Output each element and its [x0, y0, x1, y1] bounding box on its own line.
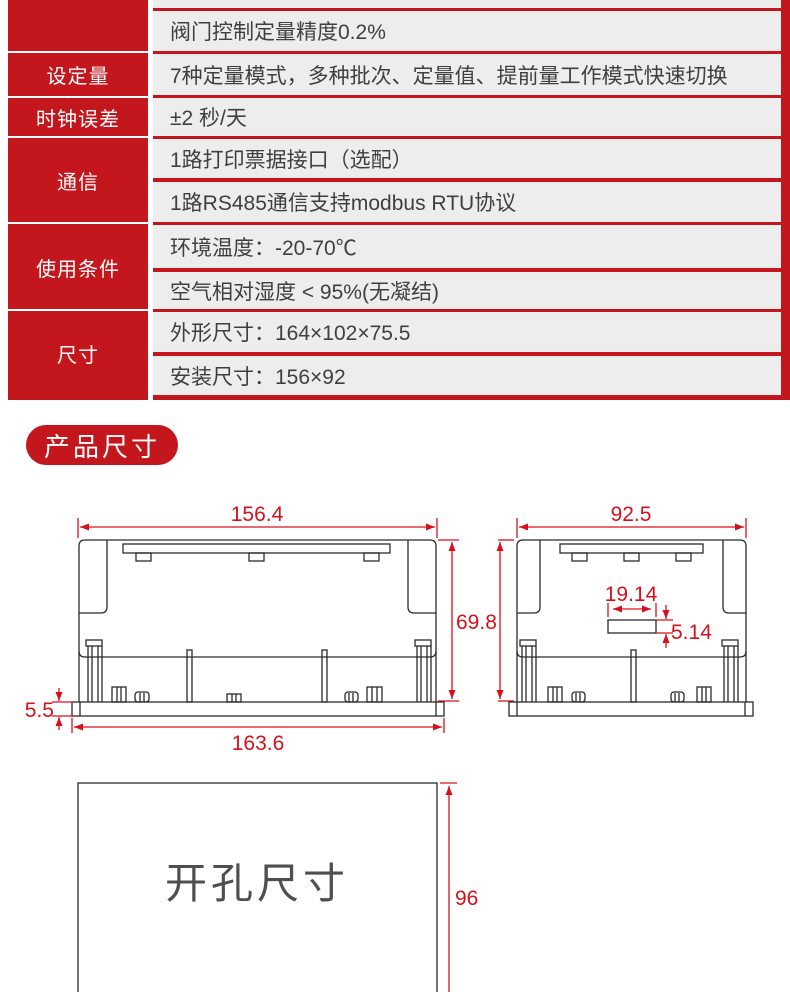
slot-width-dim: 19.14	[605, 583, 658, 606]
side-width-dim: 92.5	[611, 503, 652, 526]
flange-height-dim: 5.5	[25, 699, 54, 722]
front-width-dim: 156.4	[231, 503, 284, 526]
spec-row: 空气相对湿度 < 95%(无凝结)	[153, 272, 781, 309]
spec-row	[153, 0, 781, 8]
dimension-drawings: 156.4	[0, 490, 790, 992]
cutout-label: 开孔尺寸	[165, 860, 349, 907]
spec-row: 1路RS485通信支持modbus RTU协议	[153, 182, 781, 222]
spec-group-label	[8, 0, 148, 51]
spec-row: 环境温度：-20-70℃	[153, 225, 781, 268]
front-mount-width-dim: 163.6	[232, 732, 285, 755]
product-spec-page: 设定量 时钟误差 通信 使用条件 尺寸 阀门控制定量精度0.2% 7种定量模式，…	[0, 0, 790, 992]
front-view-drawing: 156.4	[25, 503, 497, 755]
spec-group-label: 使用条件	[8, 225, 148, 309]
spec-row: 1路打印票据接口（选配）	[153, 139, 781, 178]
spec-table: 设定量 时钟误差 通信 使用条件 尺寸 阀门控制定量精度0.2% 7种定量模式，…	[8, 0, 790, 400]
slot-height-dim: 5.14	[671, 621, 712, 644]
group-divider	[8, 222, 153, 224]
spec-group-label: 时钟误差	[8, 98, 148, 136]
spec-row: 阀门控制定量精度0.2%	[153, 11, 781, 51]
spec-group-label: 尺寸	[8, 312, 148, 395]
front-height-dim: 69.8	[456, 611, 497, 634]
spec-group-label: 设定量	[8, 53, 148, 95]
spec-group-label: 通信	[8, 139, 148, 222]
spec-row: 外形尺寸：164×102×75.5	[153, 312, 781, 352]
group-divider	[8, 136, 153, 138]
group-divider	[8, 51, 153, 53]
cutout-drawing: 开孔尺寸 96	[78, 783, 478, 992]
side-view-drawing: 92.5 19.14 5.14	[498, 503, 753, 716]
cutout-height-dim: 96	[455, 887, 478, 910]
section-badge: 产品尺寸	[26, 425, 178, 465]
group-divider	[8, 309, 153, 311]
spec-row: ±2 秒/天	[153, 98, 781, 136]
spec-row: 7种定量模式，多种批次、定量值、提前量工作模式快速切换	[153, 54, 781, 95]
spec-row: 安装尺寸：156×92	[153, 356, 781, 395]
group-divider	[8, 96, 153, 98]
